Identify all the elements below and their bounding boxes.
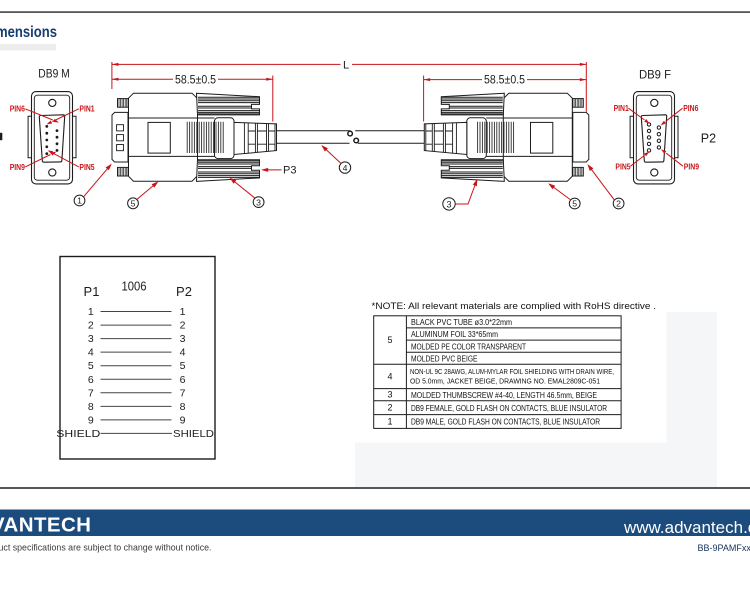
- svg-text:P2: P2: [176, 284, 192, 299]
- svg-text:9: 9: [180, 414, 186, 426]
- svg-text:PIN5: PIN5: [79, 163, 95, 172]
- svg-text:PIN1: PIN1: [79, 104, 95, 113]
- svg-text:DB9 M: DB9 M: [38, 69, 70, 81]
- svg-text:VANTECH: VANTECH: [0, 513, 91, 536]
- svg-text:BLACK PVC TUBE ø3.0*22mm: BLACK PVC TUBE ø3.0*22mm: [411, 318, 512, 327]
- svg-text:PIN5: PIN5: [615, 162, 631, 171]
- svg-text:NON-UL 9C 28AWG, ALUM-MYLAR FO: NON-UL 9C 28AWG, ALUM-MYLAR FOIL SHIELDI…: [410, 367, 614, 376]
- svg-text:3: 3: [256, 197, 261, 207]
- svg-text:www.advantech.co: www.advantech.co: [623, 518, 750, 537]
- svg-text:4: 4: [343, 163, 348, 173]
- svg-text:8: 8: [180, 401, 186, 413]
- svg-text:8: 8: [88, 401, 94, 413]
- svg-text:P1: P1: [84, 284, 100, 299]
- svg-text:PIN6: PIN6: [10, 104, 26, 113]
- svg-text:5: 5: [572, 199, 577, 209]
- svg-text:7: 7: [88, 387, 94, 399]
- svg-text:PIN9: PIN9: [684, 162, 700, 171]
- svg-text:ALUMINUM FOIL 33*65mm: ALUMINUM FOIL 33*65mm: [411, 330, 498, 339]
- svg-text:DB9 FEMALE, GOLD FLASH ON CONT: DB9 FEMALE, GOLD FLASH ON CONTACTS, BLUE…: [411, 404, 607, 413]
- svg-text:1: 1: [77, 196, 82, 206]
- svg-text:5: 5: [88, 360, 94, 372]
- svg-text:PIN9: PIN9: [10, 163, 26, 172]
- svg-text:mensions: mensions: [0, 24, 57, 41]
- svg-text:6: 6: [88, 374, 94, 386]
- svg-text:3: 3: [446, 199, 451, 209]
- svg-text:DB9 MALE, GOLD FLASH ON CONTAC: DB9 MALE, GOLD FLASH ON CONTACTS, BLUE I…: [411, 418, 600, 427]
- svg-text:4: 4: [180, 347, 186, 359]
- svg-text:PIN6: PIN6: [683, 104, 699, 113]
- svg-text:58.5±0.5: 58.5±0.5: [175, 74, 216, 86]
- svg-text:P3: P3: [283, 165, 296, 177]
- svg-text:4: 4: [88, 347, 94, 359]
- svg-text:uct specifications are subject: uct specifications are subject to change…: [0, 543, 212, 554]
- svg-text:2: 2: [387, 403, 392, 413]
- svg-text:SHIELD: SHIELD: [173, 429, 214, 440]
- svg-text:1: 1: [387, 417, 392, 427]
- svg-text:58.5±0.5: 58.5±0.5: [484, 75, 525, 87]
- svg-text:2: 2: [88, 320, 94, 332]
- svg-text:BB-9PAMFxx,: BB-9PAMFxx,: [698, 543, 750, 553]
- svg-text:9: 9: [88, 414, 94, 426]
- svg-text:SHIELD: SHIELD: [56, 429, 100, 440]
- svg-text:7: 7: [180, 387, 186, 399]
- svg-text:3: 3: [88, 333, 94, 345]
- svg-text:MOLDED PE COLOR TRANSPARENT: MOLDED PE COLOR TRANSPARENT: [411, 342, 526, 351]
- svg-text:2: 2: [616, 199, 621, 209]
- svg-text:2: 2: [180, 320, 186, 332]
- svg-text:DB9 F: DB9 F: [639, 70, 671, 82]
- svg-text:P2: P2: [701, 131, 716, 145]
- svg-text:1: 1: [180, 306, 186, 318]
- svg-text:4: 4: [387, 372, 392, 382]
- svg-text:6: 6: [180, 374, 186, 386]
- svg-text:5: 5: [387, 335, 392, 345]
- svg-text:MOLDED PVC BEIGE: MOLDED PVC BEIGE: [411, 354, 478, 363]
- svg-text:OD 5.0mm, JACKET BEIGE, DRAWIN: OD 5.0mm, JACKET BEIGE, DRAWING NO. EMAL…: [410, 377, 600, 386]
- svg-text:3: 3: [180, 333, 186, 345]
- svg-text:5: 5: [180, 360, 186, 372]
- svg-text:1006: 1006: [122, 279, 147, 294]
- svg-text:*NOTE: All relevant materials: *NOTE: All relevant materials are compli…: [372, 301, 657, 311]
- svg-text:L: L: [343, 59, 349, 71]
- svg-text:5: 5: [131, 199, 136, 209]
- svg-text:PIN1: PIN1: [614, 104, 630, 113]
- svg-text:3: 3: [387, 390, 392, 400]
- svg-text:MOLDED THUMBSCREW #4-40, LENGT: MOLDED THUMBSCREW #4-40, LENGTH 46.5mm, …: [411, 391, 597, 400]
- svg-text:1: 1: [88, 306, 94, 318]
